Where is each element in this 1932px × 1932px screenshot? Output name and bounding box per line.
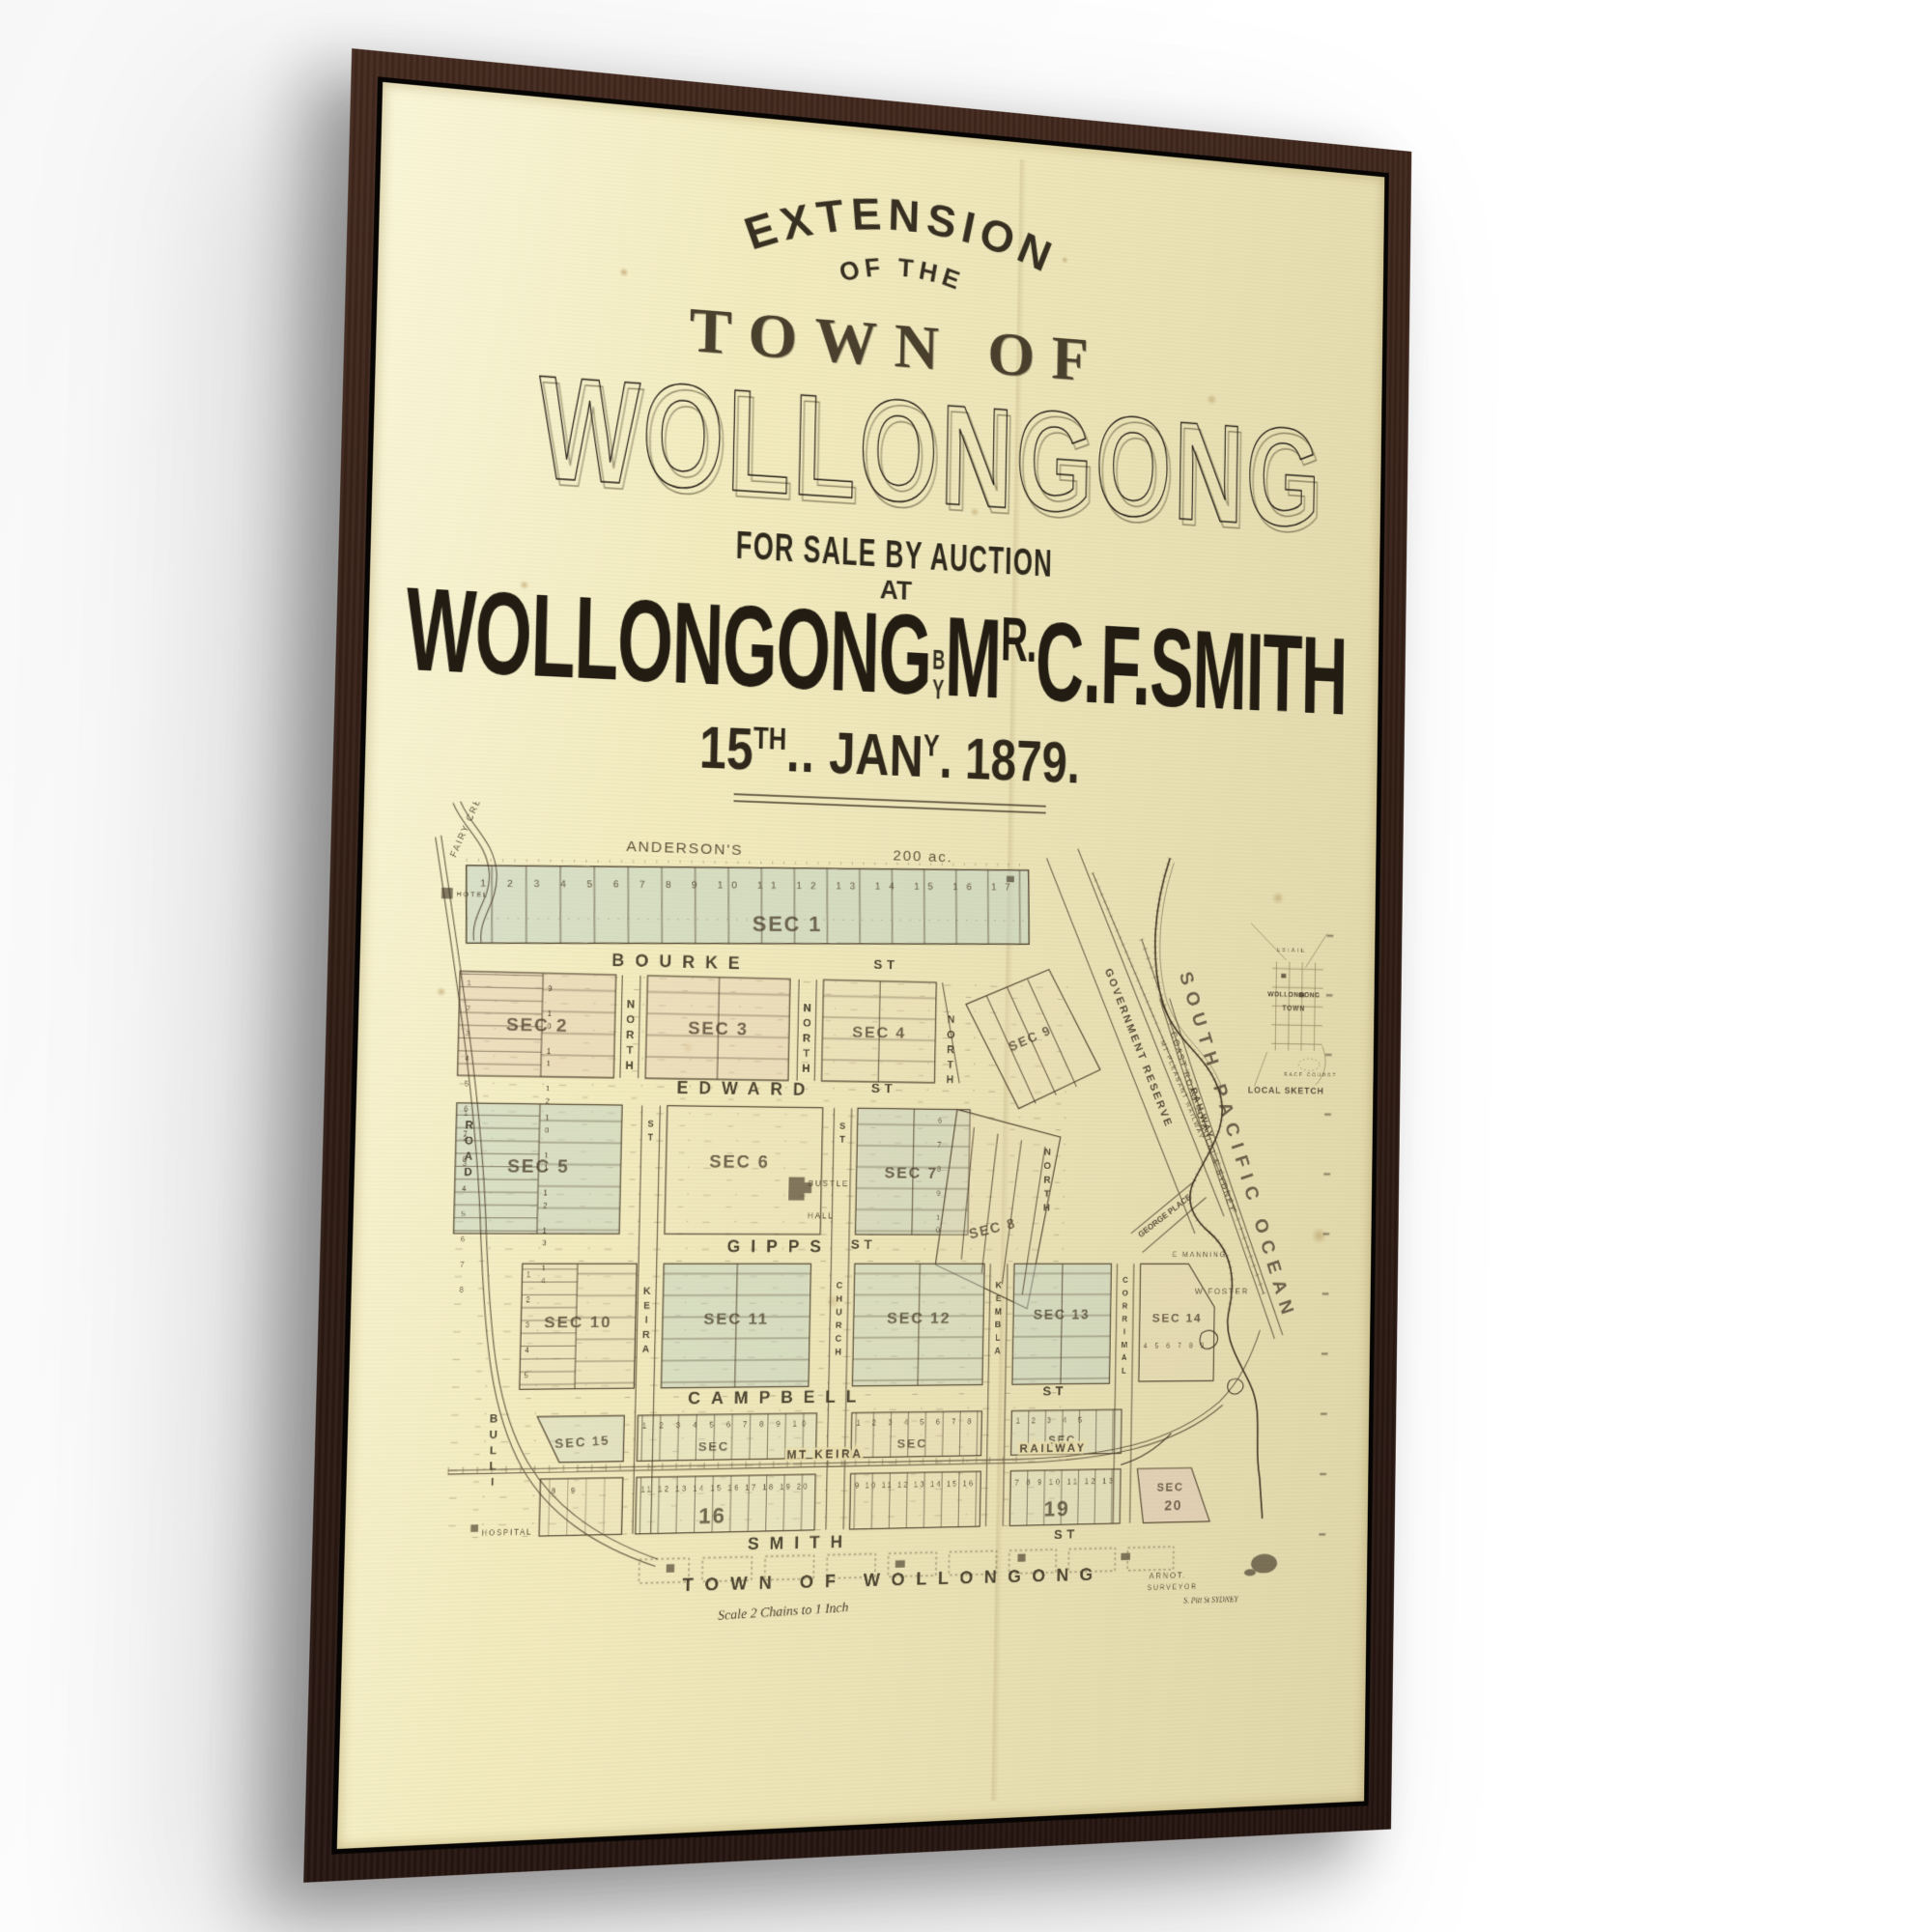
anderson-label: ANDERSON'S	[626, 838, 743, 859]
inset-town: TOWN	[1282, 1004, 1305, 1012]
street-church: CHURCH	[834, 1281, 844, 1360]
street-edward: EDWARD	[676, 1078, 815, 1099]
picture-frame: EXTENSION OF THE TOWN OF WOLLONGONG FOR …	[303, 48, 1411, 1883]
inset-caption: LOCAL SKETCH	[1248, 1086, 1324, 1097]
sec1-label: SEC 1	[753, 912, 822, 936]
rowE-lots-0: 8 9	[552, 1486, 578, 1495]
street-north-3: NORTH	[945, 1014, 957, 1090]
title-of-the: OF THE	[836, 247, 968, 298]
street-church-st: ST	[838, 1122, 847, 1148]
agent-m: M	[944, 594, 1002, 723]
sec18-lots: 1 2 3 4 5	[1016, 1415, 1084, 1425]
surveyor-address: S. Pitt St SYDNEY	[1183, 1595, 1239, 1605]
town-of-wollongong-label: TOWN OF WOLLONGONG	[682, 1564, 1103, 1595]
sec16-label: SEC	[698, 1438, 730, 1454]
street-campbell-st: ST	[1042, 1383, 1067, 1399]
sec6-label: SEC 6	[709, 1151, 770, 1172]
poster-print: EXTENSION OF THE TOWN OF WOLLONGONG FOR …	[356, 101, 1369, 1830]
street-bourke: BOURKE	[611, 951, 751, 974]
surveyor-name: ARNOT.	[1149, 1570, 1186, 1580]
sec17-lots: 1 2 3 4 5 6 7 8	[856, 1417, 973, 1428]
sec19-big-number: 19	[1043, 1496, 1069, 1520]
street-north-2: NORTH	[800, 1003, 812, 1079]
street-gipps-st: ST	[851, 1236, 877, 1252]
bulli-road-label: BULLI	[486, 1413, 499, 1492]
date-day-sup: TH	[753, 721, 787, 757]
date-day: 15	[698, 714, 753, 783]
agent-sup: R.	[1001, 604, 1037, 674]
date-month-sup: Y	[923, 728, 940, 763]
sec14-label: SEC 14	[1152, 1311, 1203, 1325]
sec4-label: SEC 4	[852, 1023, 906, 1042]
date-month: JAN	[829, 720, 924, 790]
street-keira: KEIRA	[640, 1287, 653, 1359]
street-smith-st: ST	[1054, 1526, 1079, 1542]
inset-estate: ESTATE	[1277, 948, 1306, 954]
auction-wollongong: WOLLONGONG	[405, 571, 932, 713]
street-bourke-st: ST	[873, 956, 898, 972]
inset-wollongong: WOLLONGONG	[1267, 990, 1320, 1000]
sec3-label: SEC 3	[688, 1017, 749, 1038]
mt-keira-label: MT KEIRA	[786, 1447, 863, 1462]
svg-text:OF THE: OF THE	[836, 247, 968, 298]
street-edward-st: ST	[871, 1080, 897, 1095]
date-year: 1879.	[964, 725, 1080, 796]
hotel-label: HOTEL	[456, 892, 489, 899]
bustle-label: BUSTLE	[808, 1179, 849, 1188]
sec20-number: 20	[1164, 1498, 1182, 1514]
sec7-label: SEC 7	[884, 1163, 938, 1181]
agent-name: C.F.SMITH	[1035, 599, 1348, 738]
street-keira-st: ST	[645, 1119, 656, 1146]
hall-label: HALL	[808, 1210, 835, 1220]
mt-keira-railway-label: RAILWAY	[1019, 1440, 1087, 1455]
ink-blot	[1244, 1553, 1277, 1576]
date-month-dot: .	[939, 724, 953, 791]
sec11-label: SEC 11	[703, 1309, 769, 1328]
date-dots: ..	[785, 718, 816, 785]
anderson-area: 200 ac.	[893, 847, 952, 866]
auction-line: WOLLONGONG BY MR.C.F.SMITH	[583, 581, 1190, 724]
street-campbell: CAMPBELL	[688, 1386, 867, 1407]
sec10-label: SEC 10	[544, 1313, 612, 1332]
title-block: EXTENSION OF THE TOWN OF WOLLONGONG FOR …	[383, 101, 1369, 826]
section-1-block: 1 2 3 4 5 6 7 8 9 10 11 12 13 14 15 16 1…	[467, 860, 1029, 944]
auction-agent: MR.C.F.SMITH	[944, 601, 1347, 732]
street-north-1: NORTH	[623, 999, 637, 1076]
title-rule	[733, 793, 1045, 813]
map-plan: 1 2 3 4 5 6 7 8 9 10 11 12 13 14 15 16 1…	[387, 800, 1339, 1640]
sec5-label: SEC 5	[507, 1155, 570, 1177]
hospital-label: HOSPITAL	[482, 1527, 533, 1537]
auction-by: BY	[928, 644, 950, 704]
sec20-label: SEC	[1156, 1480, 1183, 1493]
sec16-big-number: 16	[698, 1503, 726, 1528]
frame-shadow-gap: EXTENSION OF THE TOWN OF WOLLONGONG FOR …	[331, 76, 1389, 1854]
street-smith: SMITH	[748, 1531, 853, 1553]
sec13-label: SEC 13	[1034, 1308, 1091, 1323]
foster-label: W FOSTER	[1195, 1287, 1249, 1296]
sec12-label: SEC 12	[887, 1309, 952, 1327]
street-corrimal: CORRIMAL	[1120, 1275, 1130, 1378]
inset-race-course: RACE COURSE	[1284, 1072, 1337, 1079]
canvas-border: EXTENSION OF THE TOWN OF WOLLONGONG FOR …	[337, 82, 1385, 1849]
sec2-label: SEC 2	[506, 1013, 569, 1036]
street-north-4: NORTH	[1041, 1148, 1053, 1217]
scale-note: Scale 2 Chains to 1 Inch	[718, 1600, 848, 1623]
street-gipps: GIPPS	[726, 1236, 832, 1256]
surveyor-title: SURVEYOR	[1148, 1582, 1198, 1592]
street-kembla: KEMBLA	[993, 1281, 1004, 1359]
manning-label: E MANNING	[1172, 1250, 1227, 1259]
product-photo: EXTENSION OF THE TOWN OF WOLLONGONG FOR …	[0, 0, 1932, 1932]
sec14-lots: 4 5 6 7 8 9	[1144, 1341, 1206, 1350]
sec17-label: SEC	[897, 1435, 928, 1450]
